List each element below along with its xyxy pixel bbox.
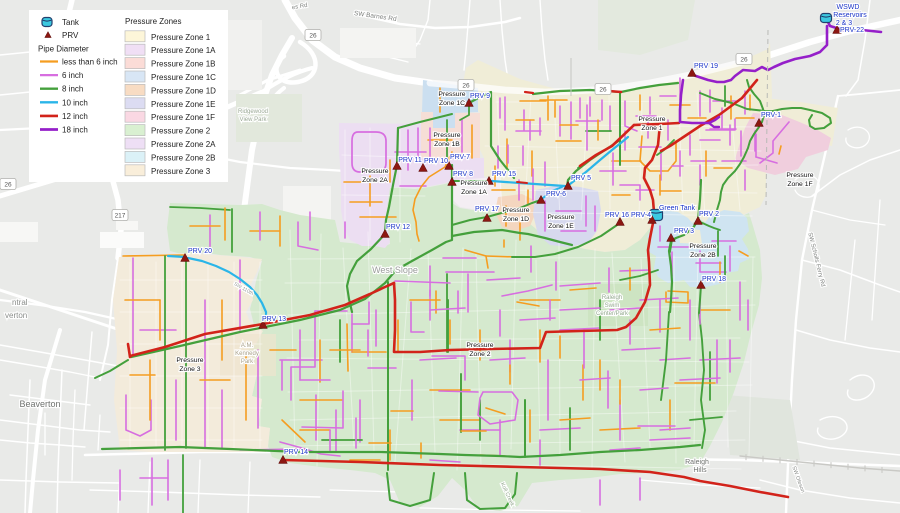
svg-text:Zone 1F: Zone 1F	[787, 181, 812, 188]
svg-text:Pressure Zone 2: Pressure Zone 2	[151, 127, 211, 136]
svg-text:PRV 20: PRV 20	[188, 248, 212, 255]
svg-text:A.M.: A.M.	[241, 343, 254, 349]
svg-text:PRV 11: PRV 11	[398, 157, 422, 164]
svg-text:less than 6 inch: less than 6 inch	[62, 58, 118, 67]
svg-text:Pressure: Pressure	[438, 91, 465, 98]
svg-text:PRV 3: PRV 3	[674, 228, 694, 235]
svg-text:8 inch: 8 inch	[62, 85, 83, 94]
svg-text:WSWD: WSWD	[837, 4, 860, 11]
svg-text:Pressure Zone 1C: Pressure Zone 1C	[151, 73, 216, 82]
svg-text:PRV 14: PRV 14	[284, 449, 308, 456]
svg-text:Pressure Zone 1: Pressure Zone 1	[151, 33, 211, 42]
svg-text:Ridgewood: Ridgewood	[238, 109, 268, 115]
svg-text:Reservoirs: Reservoirs	[833, 12, 867, 19]
svg-text:Zone 1C: Zone 1C	[439, 100, 465, 107]
svg-text:View Park: View Park	[240, 117, 268, 123]
svg-text:Swim: Swim	[605, 303, 620, 309]
svg-text:Pressure: Pressure	[786, 172, 813, 179]
svg-text:26: 26	[462, 83, 470, 90]
svg-text:PRV 13: PRV 13	[262, 316, 286, 323]
svg-text:Hills: Hills	[693, 467, 707, 474]
svg-text:Pressure: Pressure	[176, 357, 203, 364]
svg-text:Raleigh: Raleigh	[685, 459, 709, 466]
svg-text:26: 26	[740, 57, 748, 64]
svg-text:PRV 17: PRV 17	[475, 206, 499, 213]
svg-text:6 inch: 6 inch	[62, 71, 83, 80]
svg-text:PRV 15: PRV 15	[492, 171, 516, 178]
svg-text:Zone 1D: Zone 1D	[503, 216, 529, 223]
svg-text:Center/Park: Center/Park	[596, 311, 629, 317]
svg-text:PRV-4: PRV-4	[631, 212, 651, 219]
svg-text:PRV 2: PRV 2	[699, 211, 719, 218]
svg-text:Park: Park	[241, 359, 254, 365]
svg-text:Pressure Zone 3: Pressure Zone 3	[151, 167, 211, 176]
svg-text:PRV 16: PRV 16	[605, 212, 629, 219]
svg-text:Pressure Zone 1D: Pressure Zone 1D	[151, 86, 216, 95]
svg-text:Pressure Zone 1F: Pressure Zone 1F	[151, 113, 215, 122]
svg-text:Pressure: Pressure	[361, 168, 388, 175]
svg-text:PRV-22: PRV-22	[840, 27, 864, 34]
svg-text:PRV 9: PRV 9	[470, 93, 490, 100]
svg-text:verton: verton	[5, 311, 27, 320]
svg-text:Tank: Tank	[62, 18, 80, 27]
svg-text:PRV 8: PRV 8	[453, 171, 473, 178]
svg-text:Zone 1: Zone 1	[641, 125, 662, 132]
svg-text:Pressure Zones: Pressure Zones	[125, 17, 181, 26]
svg-text:PRV-6: PRV-6	[546, 191, 566, 198]
svg-text:Zone 2: Zone 2	[469, 351, 490, 358]
svg-text:217: 217	[115, 213, 126, 220]
svg-text:18 inch: 18 inch	[62, 126, 88, 135]
svg-text:Pressure: Pressure	[466, 342, 493, 349]
svg-text:10 inch: 10 inch	[62, 98, 88, 107]
svg-text:PRV 19: PRV 19	[694, 63, 718, 70]
svg-text:Zone 1E: Zone 1E	[548, 223, 574, 230]
svg-text:Zone 1A: Zone 1A	[461, 189, 487, 196]
svg-text:Pressure: Pressure	[638, 116, 665, 123]
svg-text:PRV: PRV	[62, 31, 79, 40]
svg-text:Pressure Zone 1B: Pressure Zone 1B	[151, 60, 215, 69]
svg-text:12 inch: 12 inch	[62, 112, 88, 121]
svg-text:Pressure: Pressure	[689, 243, 716, 250]
svg-text:26: 26	[309, 33, 317, 40]
svg-text:26: 26	[4, 182, 12, 189]
svg-text:Pressure Zone 1E: Pressure Zone 1E	[151, 100, 215, 109]
svg-text:PRV-1: PRV-1	[761, 112, 781, 119]
svg-text:PRV 12: PRV 12	[386, 224, 410, 231]
svg-text:Pressure: Pressure	[502, 207, 529, 214]
svg-text:Zone 3: Zone 3	[179, 366, 200, 373]
svg-text:PRV 5: PRV 5	[571, 175, 591, 182]
svg-text:Pressure Zone 1A: Pressure Zone 1A	[151, 46, 216, 55]
svg-text:West Slope: West Slope	[372, 265, 418, 275]
svg-text:PRV-7: PRV-7	[450, 154, 470, 161]
svg-text:Raleigh: Raleigh	[602, 295, 622, 301]
svg-text:Pressure: Pressure	[547, 214, 574, 221]
svg-text:Zone 2B: Zone 2B	[690, 252, 716, 259]
svg-text:PRV 10: PRV 10	[424, 158, 448, 165]
svg-text:Pressure Zone 2B: Pressure Zone 2B	[151, 153, 215, 162]
svg-text:Zone 2A: Zone 2A	[362, 177, 388, 184]
svg-text:2 & 3: 2 & 3	[836, 20, 852, 27]
svg-text:Beaverton: Beaverton	[19, 399, 60, 409]
svg-text:ntral: ntral	[12, 298, 28, 307]
svg-text:26: 26	[599, 87, 607, 94]
svg-text:PRV 18: PRV 18	[702, 276, 726, 283]
svg-text:Pipe Diameter: Pipe Diameter	[38, 45, 89, 54]
svg-text:Kennedy: Kennedy	[235, 351, 259, 357]
svg-text:Zone 1B: Zone 1B	[434, 141, 460, 148]
svg-text:Pressure Zone 2A: Pressure Zone 2A	[151, 140, 216, 149]
svg-text:Pressure: Pressure	[433, 132, 460, 139]
svg-text:Green Tank: Green Tank	[659, 205, 696, 212]
svg-text:Pressure: Pressure	[460, 180, 487, 187]
